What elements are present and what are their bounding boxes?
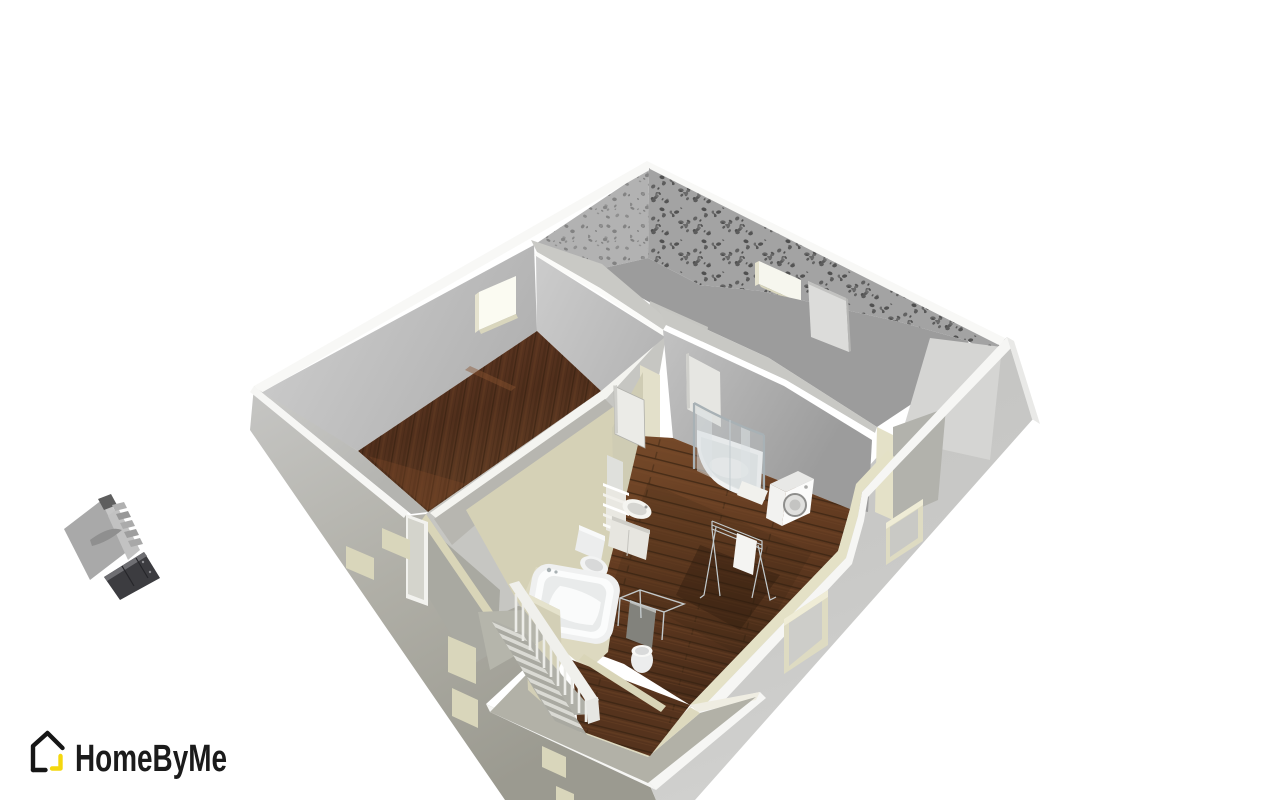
svg-text:HomeByMe: HomeByMe (75, 738, 227, 780)
